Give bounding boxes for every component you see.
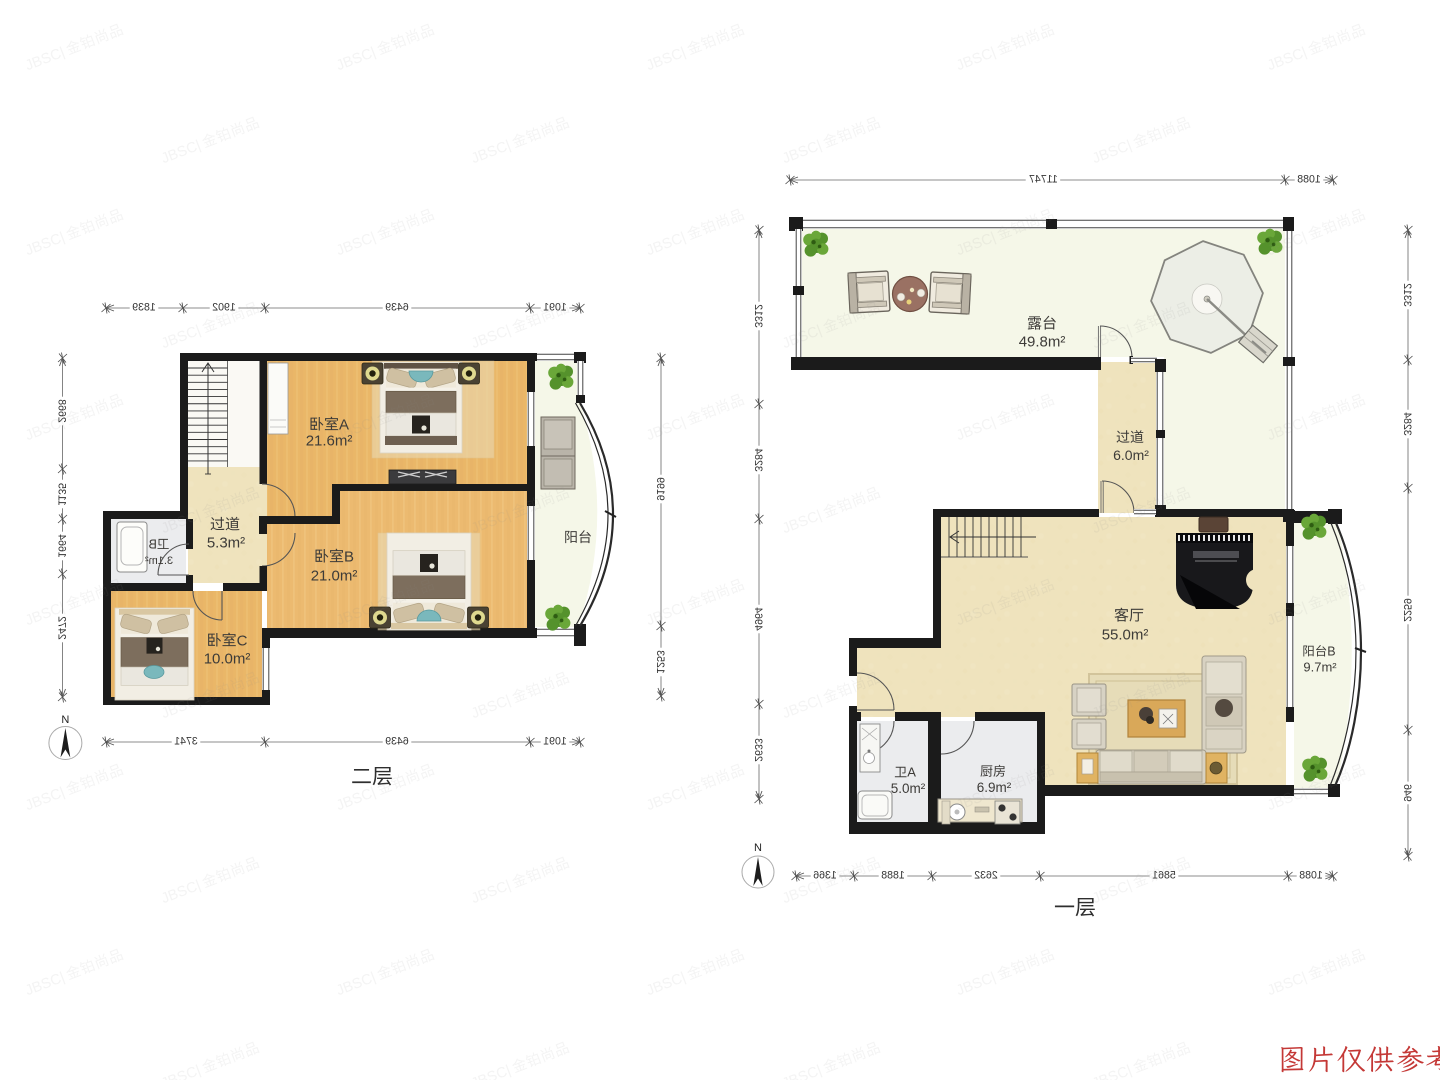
svg-text:N: N	[61, 714, 69, 726]
svg-text:A: A	[907, 765, 916, 780]
svg-text:1091: 1091	[543, 735, 567, 747]
svg-text:3284: 3284	[752, 448, 764, 472]
svg-text:1088: 1088	[1299, 869, 1323, 881]
svg-text:1088: 1088	[1297, 173, 1321, 185]
svg-text:3741: 3741	[174, 735, 198, 747]
svg-text:5.3m²: 5.3m²	[207, 534, 245, 551]
svg-text:3312: 3312	[1401, 283, 1413, 307]
svg-text:6.0m²: 6.0m²	[1113, 447, 1149, 463]
svg-text:N: N	[754, 842, 762, 854]
svg-text:B: B	[149, 538, 157, 552]
svg-text:3.1m²: 3.1m²	[145, 555, 173, 567]
svg-text:2632: 2632	[974, 869, 998, 881]
svg-text:2633: 2633	[752, 738, 764, 762]
svg-text:11747: 11747	[1029, 173, 1058, 185]
svg-text:946: 946	[1401, 784, 1413, 802]
svg-text:1839: 1839	[132, 301, 156, 313]
svg-text:3312: 3312	[752, 304, 764, 328]
svg-text:1664: 1664	[56, 534, 68, 558]
svg-text:3284: 3284	[1401, 412, 1413, 436]
svg-text:4964: 4964	[752, 607, 764, 631]
svg-text:6439: 6439	[385, 301, 409, 313]
svg-text:49.8m²: 49.8m²	[1019, 333, 1066, 350]
svg-text:55.0m²: 55.0m²	[1102, 626, 1149, 643]
svg-text:1888: 1888	[881, 869, 905, 881]
svg-text:2259: 2259	[1401, 598, 1413, 622]
svg-text:10.0m²: 10.0m²	[204, 650, 251, 667]
svg-text:9199: 9199	[654, 477, 666, 501]
svg-text:B: B	[344, 548, 354, 565]
svg-text:21.0m²: 21.0m²	[311, 567, 358, 584]
svg-text:1135: 1135	[56, 483, 68, 506]
svg-text:B: B	[1327, 645, 1335, 659]
svg-text:9.7m²: 9.7m²	[1303, 660, 1337, 675]
svg-text:5.0m²: 5.0m²	[891, 781, 926, 796]
svg-text:1253: 1253	[654, 650, 666, 674]
svg-text:6439: 6439	[385, 735, 409, 747]
svg-text:C: C	[237, 632, 248, 649]
svg-text:2472: 2472	[56, 616, 68, 640]
